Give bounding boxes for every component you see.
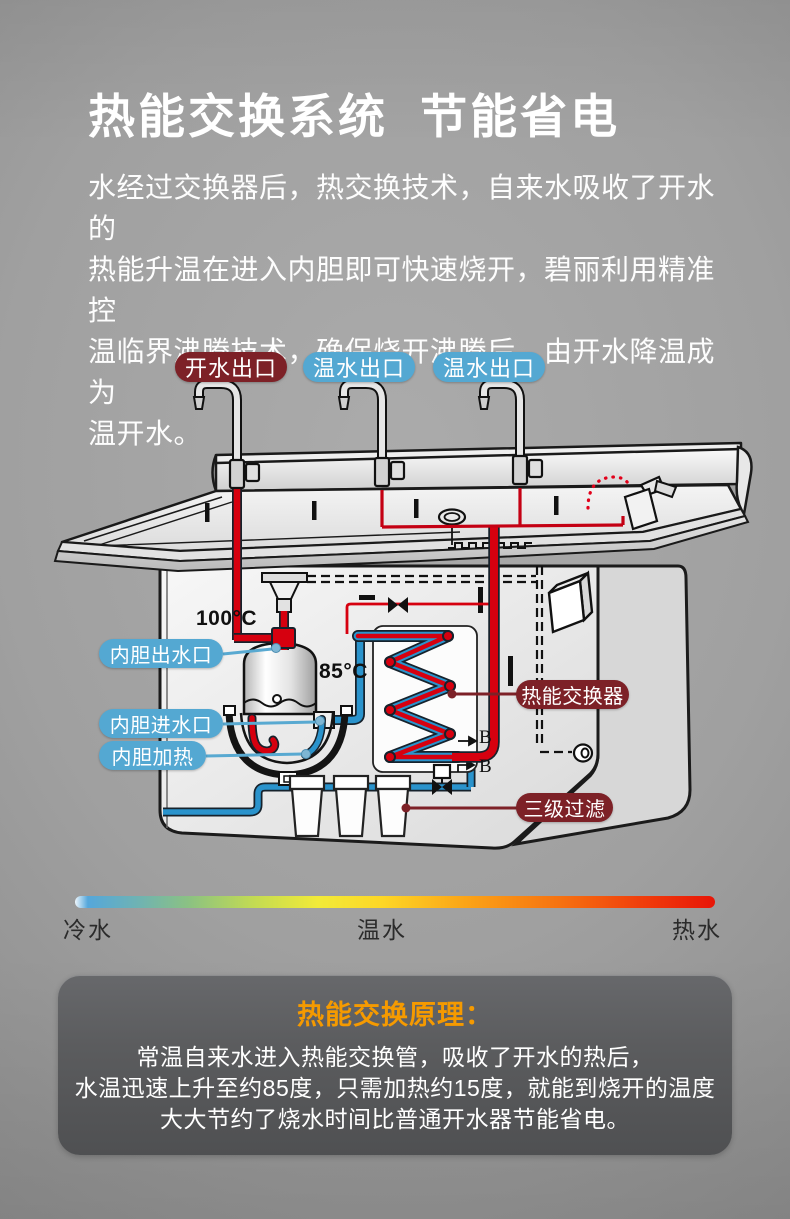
label-warm-outlet-1: 温水出口 — [303, 352, 415, 382]
principle-line: 水温迅速上升至约85度，只需加热约15度，就能到烧开的温度 — [58, 1073, 732, 1104]
promo-page: 热能交换系统 节能省电 水经过交换器后，热交换技术，自来水吸收了开水的 热能升温… — [0, 0, 790, 1219]
tank-sensor — [273, 695, 281, 703]
label-temp-85: 85°C — [319, 660, 368, 684]
scale-label-cold: 冷水 — [63, 911, 113, 945]
label-heat-exchanger: 热能交换器 — [516, 680, 629, 709]
panel-slot — [478, 587, 483, 613]
drain-port — [574, 745, 592, 762]
principle-line: 大大节约了烧水时间比普通开水器节能省电。 — [58, 1104, 732, 1135]
label-tank-heater: 内胆加热 — [99, 741, 206, 770]
faucet-nozzle — [339, 397, 349, 409]
label-tank-inlet: 内胆进水口 — [99, 709, 223, 738]
label-tank-outlet: 内胆出水口 — [99, 639, 223, 668]
connector-mark-b1: B — [479, 727, 492, 749]
label-filter: 三级过滤 — [516, 793, 613, 822]
panel-slot — [508, 656, 513, 686]
scale-label-hot: 热水 — [672, 911, 722, 945]
faucet-nozzle — [194, 397, 204, 409]
label-warm-outlet-2: 温水出口 — [433, 352, 545, 382]
connector-mark-b2: B — [479, 756, 492, 778]
temperature-scale-bar — [75, 896, 715, 908]
principle-title: 热能交换原理： — [58, 993, 732, 1032]
label-temp-100: 100°C — [196, 607, 257, 631]
faucet-nozzle — [479, 397, 489, 409]
heat-exchanger — [358, 626, 477, 772]
principle-body: 常温自来水进入热能交换管，吸收了开水的热后， 水温迅速上升至约85度，只需加热约… — [58, 1042, 732, 1135]
principle-panel: 热能交换原理： 常温自来水进入热能交换管，吸收了开水的热后， 水温迅速上升至约8… — [58, 975, 732, 1155]
label-boiling-outlet: 开水出口 — [175, 352, 287, 382]
principle-line: 常温自来水进入热能交换管，吸收了开水的热后， — [58, 1042, 732, 1073]
filter-cartridges — [290, 776, 410, 836]
scale-label-warm: 温水 — [357, 911, 407, 945]
